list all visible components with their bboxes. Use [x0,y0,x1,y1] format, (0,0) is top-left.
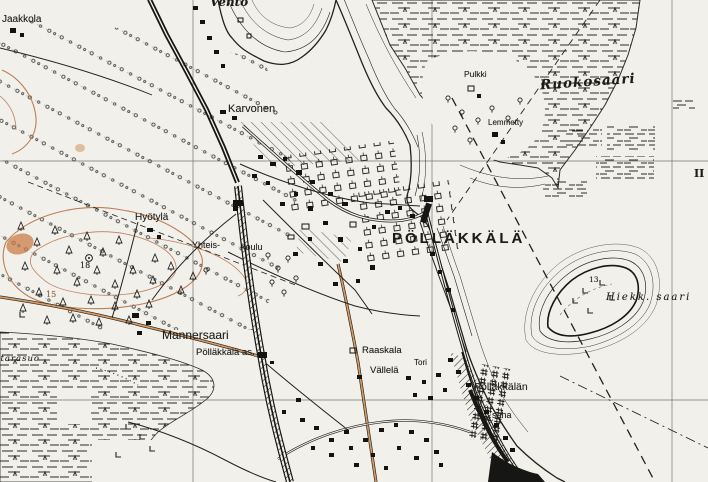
label-marsh-name: ntäräsuo [0,355,40,364]
label-hyotyla: Hyötylä [135,213,168,223]
label-saha: saha [492,411,512,420]
label-mannersaari: Mannersaari [162,329,229,341]
label-pollakkalan: Pölläkkälän [474,382,528,393]
label-sheet-numeral: II [694,168,704,179]
label-pollakkala: PÖLLÄKKÄLÄ [392,231,525,246]
label-spot-height-18: 18 [80,262,90,270]
label-tori: Tori [414,359,427,367]
label-raaskala: Raaskala [362,346,402,356]
label-vento: Vento [210,0,248,8]
label-koulu: koulu [241,243,263,252]
label-pulkki: Pulkki [464,70,487,79]
label-lemmetty: Lemmetty [488,119,523,127]
label-hiekkasaari: Hiekk. saari [606,293,691,303]
label-spot-height-13: 13 [589,276,599,284]
label-vallela: Vällelä [370,366,399,376]
label-jaakkola: Jaakkola [2,15,41,25]
label-pollakkala-as: Pölläkkälä as. [196,348,255,358]
label-karvonen: Karvonen [228,104,275,115]
label-yhteis: Yhteis- [192,241,220,250]
label-contour-15: 15 [46,291,56,299]
map-canvas: Jaakkola Vento Karvonen Pulkki Ruokosaar… [0,0,708,482]
